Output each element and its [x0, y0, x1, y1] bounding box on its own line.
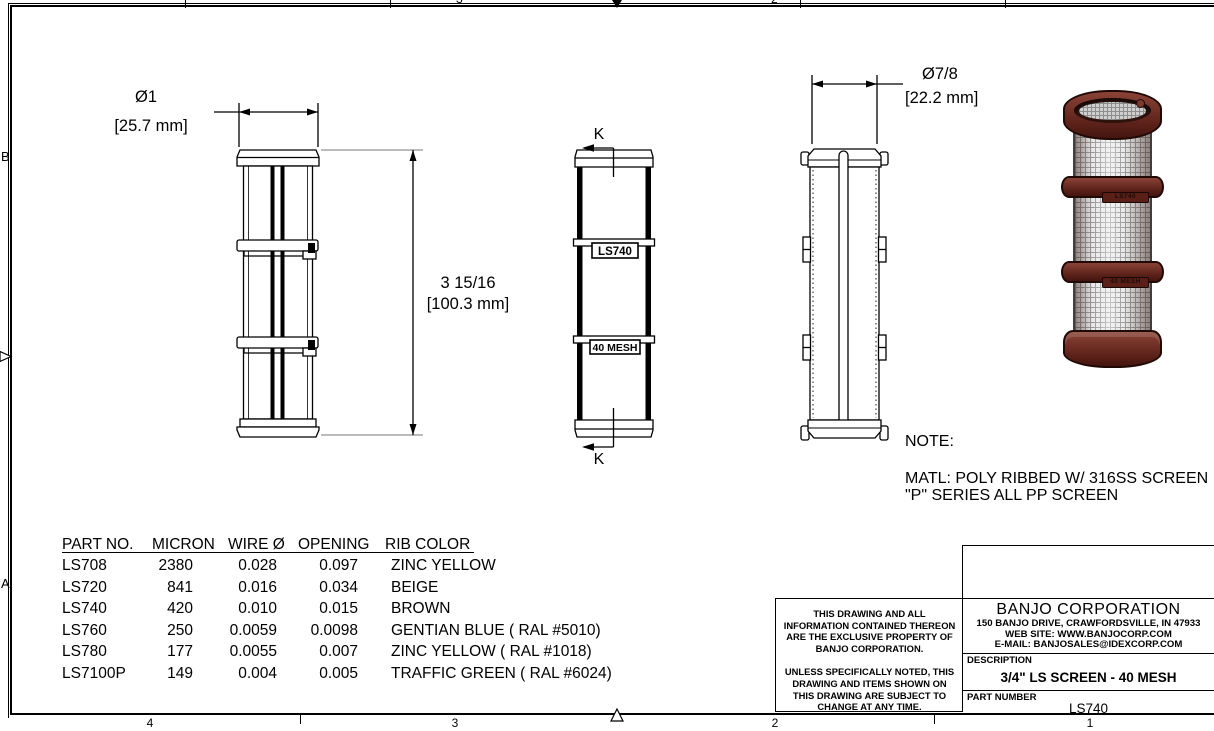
description-box: DESCRIPTION 3/4" LS SCREEN - 40 MESH [962, 653, 1214, 690]
cell-color: TRAFFIC GREEN ( RAL #6024) [391, 665, 612, 683]
section-view: LS740 40 MESH K K [574, 126, 655, 468]
col-header-color: RIB COLOR [385, 536, 470, 554]
cell-color: BEIGE [391, 579, 438, 597]
cell-opening: 0.034 [277, 579, 358, 597]
table-row: LS780 177 0.0055 0.007 ZINC YELLOW ( RAL… [62, 639, 474, 661]
col-header-micron: MICRON [152, 536, 215, 554]
front-bottom-cap [240, 419, 316, 427]
note-title: NOTE: [905, 433, 1214, 451]
cell-color: ZINC YELLOW [391, 557, 496, 575]
description-label: DESCRIPTION [967, 655, 1214, 666]
render-knob [1136, 99, 1145, 108]
dimension-diameter-side: Ø7/8 [22.2 mm] [812, 65, 978, 144]
arrowhead-icon [410, 424, 417, 435]
dim-dia-front-value: Ø1 [135, 88, 157, 106]
arrowhead-icon [582, 443, 594, 451]
section-wall [577, 167, 583, 420]
cell-wire: 0.010 [193, 600, 277, 618]
section-flag-letter: K [594, 126, 605, 143]
disclaimer-text-2: UNLESS SPECIFICALLY NOTED, THIS DRAWING … [782, 666, 957, 712]
cell-micron: 420 [122, 600, 193, 618]
cell-micron: 841 [122, 579, 193, 597]
disclaimer-text-1: THIS DRAWING AND ALL INFORMATION CONTAIN… [782, 608, 957, 654]
cell-color: GENTIAN BLUE ( RAL #5010) [391, 622, 601, 640]
front-core-line [271, 166, 275, 419]
cell-opening: 0.097 [277, 557, 358, 575]
front-view: Ø1 [25.7 mm] [114, 88, 509, 437]
arrowhead-icon [239, 109, 250, 116]
arrowhead-icon [812, 81, 823, 88]
render-rib-label: 40 MESH [1102, 277, 1149, 288]
description-value: 3/4" LS SCREEN - 40 MESH [963, 670, 1214, 685]
zone-number: 2 [772, 716, 779, 730]
center-mark-bottom-icon [610, 708, 624, 723]
cell-opening: 0.015 [277, 600, 358, 618]
cell-micron: 2380 [122, 557, 193, 575]
company-box: BANJO CORPORATION 150 BANJO DRIVE, CRAWF… [962, 598, 1214, 653]
rib-label-part: LS740 [598, 246, 632, 258]
table-row: LS708 2380 0.028 0.097 ZINC YELLOW [62, 553, 474, 575]
rib-label-mesh: 40 MESH [593, 342, 638, 354]
zone-number: 3 [452, 716, 459, 730]
cell-part: LS7100P [62, 665, 126, 683]
render-rib-label: LS740 [1102, 192, 1149, 203]
cell-opening: 0.005 [277, 665, 358, 683]
note-line: MATL: POLY RIBBED W/ 316SS SCREEN [905, 470, 1214, 488]
note-block: NOTE: MATL: POLY RIBBED W/ 316SS SCREEN … [905, 433, 1214, 505]
cell-color: BROWN [391, 600, 450, 618]
side-bottom-cap [808, 420, 881, 438]
front-rib-lower [237, 337, 318, 356]
render-top-ring [1063, 90, 1162, 140]
table-row: LS7100P 149 0.004 0.005 TRAFFIC GREEN ( … [62, 661, 474, 683]
section-wall [646, 167, 652, 420]
side-center-slot [839, 151, 848, 434]
dim-dia-front-metric: [25.7 mm] [114, 117, 187, 135]
table-row: LS740 420 0.010 0.015 BROWN [62, 596, 474, 618]
front-body [244, 166, 313, 419]
zone-tick [300, 715, 301, 724]
dimension-diameter-front: Ø1 [25.7 mm] [114, 88, 318, 147]
parts-table: PART NO. MICRON WIRE Ø OPENING RIB COLOR… [62, 536, 474, 682]
zone-number: 4 [147, 716, 154, 730]
cell-opening: 0.0098 [277, 622, 358, 640]
render-bottom-cap [1063, 330, 1162, 368]
parts-table-header: PART NO. MICRON WIRE Ø OPENING RIB COLOR [62, 536, 474, 553]
dim-dia-side-metric: [22.2 mm] [905, 89, 978, 107]
render-rib-lower: 40 MESH [1061, 261, 1164, 283]
col-header-part: PART NO. [62, 536, 134, 554]
zone-number: 1 [1087, 716, 1094, 730]
note-line: "P" SERIES ALL PP SCREEN [905, 487, 1214, 505]
zone-letter: A [1, 576, 10, 591]
company-email: E-MAIL: BANJOSALES@IDEXCORP.COM [963, 640, 1214, 651]
cell-wire: 0.016 [193, 579, 277, 597]
table-row: LS720 841 0.016 0.034 BEIGE [62, 575, 474, 597]
dim-height-value: 3 15/16 [440, 274, 495, 292]
cell-wire: 0.004 [193, 665, 277, 683]
cell-part: LS760 [62, 622, 107, 640]
part-render-3d: LS740 40 MESH [1063, 90, 1162, 368]
part-number-value: LS740 [963, 701, 1214, 716]
arrowhead-icon [410, 150, 417, 161]
cell-micron: 177 [122, 643, 193, 661]
cell-opening: 0.007 [277, 643, 358, 661]
company-address: 150 BANJO DRIVE, CRAWFORDSVILLE, IN 4793… [963, 619, 1214, 630]
arrowhead-icon [307, 109, 318, 116]
col-header-opening: OPENING [298, 536, 369, 554]
part-number-box: PART NUMBER LS740 [962, 690, 1214, 712]
cell-wire: 0.0059 [193, 622, 277, 640]
render-mesh-body [1073, 110, 1152, 358]
cell-part: LS740 [62, 600, 107, 618]
arrowhead-icon [866, 81, 877, 88]
front-core-line [281, 166, 285, 419]
company-name: BANJO CORPORATION [963, 601, 1214, 619]
col-header-wire: WIRE Ø [228, 536, 285, 554]
cell-wire: 0.028 [193, 557, 277, 575]
front-rib-upper [237, 240, 318, 259]
cell-part: LS708 [62, 557, 107, 575]
table-row: LS760 250 0.0059 0.0098 GENTIAN BLUE ( R… [62, 618, 474, 640]
dim-dia-side-value: Ø7/8 [922, 65, 958, 83]
logo-box: BANJ ® CORPORATION [962, 545, 1214, 598]
cell-part: LS780 [62, 643, 107, 661]
zone-tick [934, 715, 935, 724]
side-view: Ø7/8 [22.2 mm] [801, 65, 978, 440]
section-flag-letter: K [594, 451, 605, 468]
cell-micron: 250 [122, 622, 193, 640]
cell-part: LS720 [62, 579, 107, 597]
cell-micron: 149 [122, 665, 193, 683]
disclaimer-box: THIS DRAWING AND ALL INFORMATION CONTAIN… [775, 598, 963, 712]
cell-color: ZINC YELLOW ( RAL #1018) [391, 643, 592, 661]
render-rib-upper: LS740 [1061, 176, 1164, 198]
cell-wire: 0.0055 [193, 643, 277, 661]
dim-height-metric: [100.3 mm] [427, 295, 510, 313]
dimension-height: 3 15/16 [100.3 mm] [321, 150, 509, 435]
